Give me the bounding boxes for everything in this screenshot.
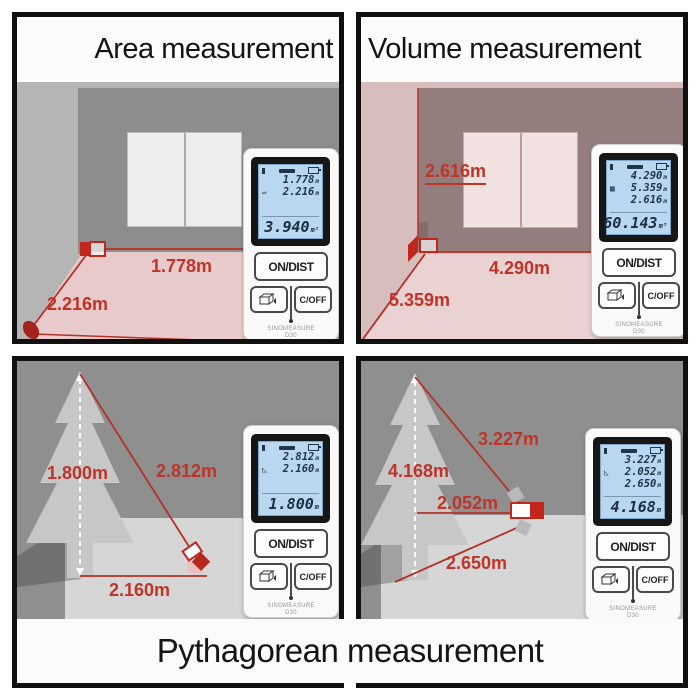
laser-indicator-icon xyxy=(262,445,265,451)
measurement-label-depth: 5.359m xyxy=(389,290,450,311)
area-volume-button[interactable] xyxy=(598,282,636,309)
area-volume-button[interactable] xyxy=(250,563,288,590)
laser-distance-meter: 3.227m ◺2.052m 2.650m 4.168m ON/DIST C/O… xyxy=(585,428,681,621)
measurement-label-hypotenuse: 2.812m xyxy=(156,461,217,482)
button-divider xyxy=(290,286,292,320)
device-screen: 4.290m ▦5.359m 2.616m 60.143m³ xyxy=(599,153,678,242)
brand-text: SINOMEASURE xyxy=(250,326,332,333)
mode-status-icon xyxy=(621,449,637,453)
device-screen: 1.778m ▱2.216m 3.940m² xyxy=(251,157,330,246)
room-scene-volume: 2.616m 4.290m 5.359m 4.290m ▦5.359m 2.61… xyxy=(361,82,683,339)
on-dist-button[interactable]: ON/DIST xyxy=(254,529,328,558)
lcd-result-unit: m xyxy=(315,503,319,511)
laser-dot-icon xyxy=(20,318,43,339)
lcd-value-1: 2.812 xyxy=(283,451,315,463)
laser-distance-meter: 4.290m ▦5.359m 2.616m 60.143m³ ON/DIST C… xyxy=(591,144,683,337)
brand-text: SINOMEASURE xyxy=(250,603,332,610)
measurement-label-base: 2.160m xyxy=(109,580,170,601)
cuboid-speaker-icon xyxy=(258,293,280,306)
model-text: D30 xyxy=(250,333,332,339)
bottom-title: Pythagorean measurement xyxy=(157,632,544,670)
model-text: D30 xyxy=(598,329,680,336)
lcd-value-1: 4.290 xyxy=(631,170,663,182)
laser-distance-meter: 2.812m ◺2.160m 1.800m ON/DIST C/OFF xyxy=(243,425,339,618)
laser-distance-meter: 1.778m ▱2.216m 3.940m² ON/DIST C/OFF xyxy=(243,148,339,339)
lcd-result-unit: m² xyxy=(311,226,319,234)
lcd-result-value: 4.168 xyxy=(611,498,656,516)
c-off-button[interactable]: C/OFF xyxy=(294,286,332,313)
lcd-value-1: 1.778 xyxy=(283,174,315,186)
brand-text: SINOMEASURE xyxy=(592,606,674,613)
mode-status-icon xyxy=(279,169,295,173)
battery-icon xyxy=(656,163,667,170)
cuboid-speaker-icon xyxy=(600,573,622,586)
measurement-label-middle: 2.052m xyxy=(437,493,498,514)
button-divider xyxy=(638,282,640,316)
lcd-value-2: 5.359 xyxy=(631,182,663,194)
window-divider xyxy=(184,133,186,226)
device-screen: 2.812m ◺2.160m 1.800m xyxy=(251,434,330,523)
panel-area-measurement: Area measurement 1.778m 2.216m xyxy=(12,12,344,344)
lcd-value-3: 2.616 xyxy=(631,194,663,206)
lcd-result-value: 3.940 xyxy=(264,218,309,236)
room-scene-area: 1.778m 2.216m 1.778m ▱2.216m 3.940m² xyxy=(17,82,339,339)
battery-icon xyxy=(308,444,319,451)
on-dist-button[interactable]: ON/DIST xyxy=(596,532,670,561)
lcd-result-value: 1.800 xyxy=(269,495,314,513)
lcd-value-1: 3.227 xyxy=(625,454,657,466)
model-text: D30 xyxy=(250,610,332,617)
device-screen: 3.227m ◺2.052m 2.650m 4.168m xyxy=(593,437,672,526)
cuboid-speaker-icon xyxy=(258,570,280,583)
mode-status-icon xyxy=(279,446,295,450)
brand-text: SINOMEASURE xyxy=(598,322,680,329)
mode-status-icon xyxy=(627,165,643,169)
on-dist-button[interactable]: ON/DIST xyxy=(602,248,676,277)
area-volume-button[interactable] xyxy=(250,286,288,313)
c-off-button[interactable]: C/OFF xyxy=(294,563,332,590)
panel-title-area: Area measurement xyxy=(94,33,333,66)
on-dist-button[interactable]: ON/DIST xyxy=(254,252,328,281)
laser-indicator-icon xyxy=(604,448,607,454)
battery-icon xyxy=(308,167,319,174)
cuboid-speaker-icon xyxy=(606,289,628,302)
measurement-label-side-a: 1.778m xyxy=(151,256,212,277)
measurement-label-width: 4.290m xyxy=(489,258,550,279)
button-divider xyxy=(290,563,292,597)
lcd-value-2: 2.160 xyxy=(283,463,315,475)
lcd-result-unit: m xyxy=(657,506,661,514)
lcd-value-3: 2.650 xyxy=(625,478,657,490)
laser-indicator-icon xyxy=(610,164,613,170)
measurement-label-height: 1.800m xyxy=(47,463,108,484)
c-off-button[interactable]: C/OFF xyxy=(636,566,674,593)
measurement-label-height: 2.616m xyxy=(425,161,486,185)
lcd-value-2: 2.216 xyxy=(283,186,315,198)
measurement-label-hypotenuse-bottom: 2.650m xyxy=(446,553,507,574)
measurement-label-height: 4.168m xyxy=(388,461,449,482)
window-divider xyxy=(520,133,522,227)
c-off-button[interactable]: C/OFF xyxy=(642,282,680,309)
battery-icon xyxy=(650,447,661,454)
area-volume-button[interactable] xyxy=(592,566,630,593)
product-collage: Area measurement 1.778m 2.216m xyxy=(0,0,700,700)
lcd-result-value: 60.143 xyxy=(603,214,657,232)
bottom-title-band: Pythagorean measurement xyxy=(17,619,683,683)
laser-indicator-icon xyxy=(262,168,265,174)
panel-title-volume: Volume measurement xyxy=(368,33,641,66)
measurement-label-side-b: 2.216m xyxy=(47,294,108,315)
measurement-label-hypotenuse-top: 3.227m xyxy=(478,429,539,450)
lcd-result-unit: m³ xyxy=(659,222,667,230)
button-divider xyxy=(632,566,634,600)
window xyxy=(127,132,242,227)
panel-volume-measurement: Volume measurement 2.616m 4.290m 5.359m xyxy=(356,12,688,344)
lcd-value-2: 2.052 xyxy=(625,466,657,478)
